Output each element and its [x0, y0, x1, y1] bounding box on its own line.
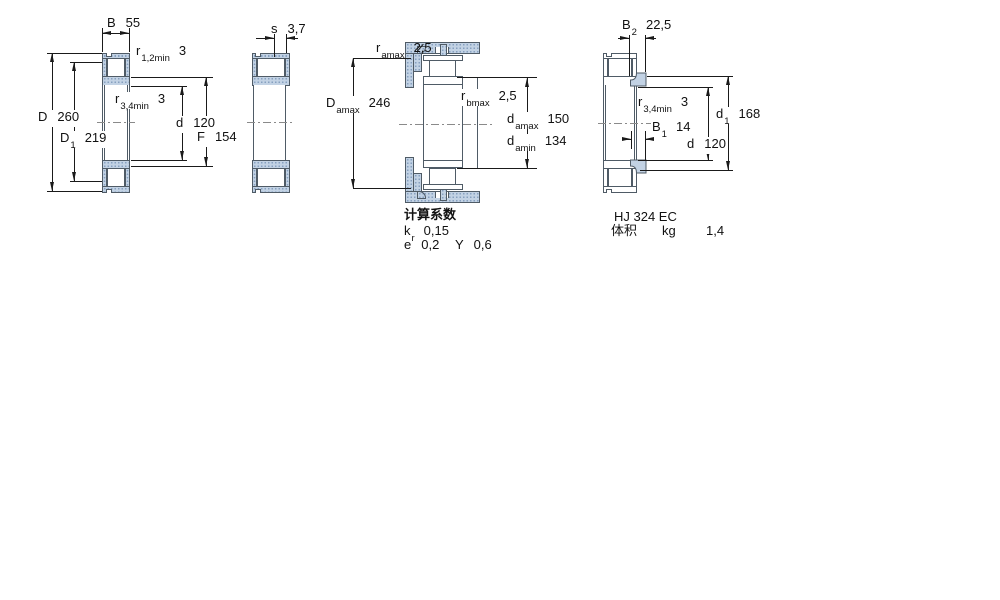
arrowhead — [645, 137, 654, 141]
dim-label-F: F154 — [196, 130, 238, 147]
dim-label-damax: damax150 — [506, 112, 570, 129]
ext-line — [47, 53, 102, 54]
outer-ring-flange — [125, 168, 130, 187]
ext-line — [645, 35, 646, 72]
bore — [253, 85, 286, 161]
arrowhead — [351, 58, 355, 67]
angle-ring-section — [630, 159, 647, 174]
dim-label-ramax: ramax2,5 — [376, 41, 432, 58]
arrowhead — [525, 159, 529, 168]
ext-line — [131, 77, 213, 78]
ext-line — [638, 160, 713, 161]
calc-e: e0,2 — [404, 238, 439, 255]
dim-label-D1: D1219 — [59, 131, 107, 148]
centerline — [399, 124, 492, 125]
dim-label-d1: d1168 — [715, 107, 761, 124]
ext-line — [47, 191, 102, 192]
dim-label-d: d120 — [686, 137, 727, 154]
arrowhead — [706, 87, 710, 96]
roller — [608, 168, 632, 187]
calc-Y: Y0,6 — [455, 238, 492, 255]
ring-face-line — [104, 85, 105, 161]
arrowhead — [204, 77, 208, 86]
angle-ring-section — [630, 72, 647, 87]
arrowhead — [351, 179, 355, 188]
snap-ring-groove — [106, 189, 112, 193]
designation-label: HJ 324 EC — [614, 210, 677, 224]
arrowhead — [50, 182, 54, 191]
outer-ring-flange — [285, 168, 290, 187]
ext-line — [70, 181, 102, 182]
dim-label-B2: B222,5 — [622, 18, 671, 35]
arrowhead — [726, 161, 730, 170]
centerline — [247, 122, 295, 123]
dim-label-Damax: Damax246 — [325, 96, 391, 113]
arrowhead — [72, 172, 76, 181]
bore — [423, 85, 463, 160]
dim-label-D: D260 — [37, 110, 80, 127]
shaft-shoulder-line — [457, 168, 537, 169]
dim-label-B: B55 — [107, 16, 140, 33]
roller — [257, 168, 285, 187]
arrowhead — [620, 36, 629, 40]
ext-line — [640, 170, 733, 171]
arrowhead — [525, 78, 529, 87]
roller — [107, 168, 125, 187]
dim-label-rbmax: rbmax2,5 — [460, 89, 518, 106]
arrowhead — [180, 86, 184, 95]
arrowhead — [622, 137, 631, 141]
roller — [257, 58, 285, 77]
ext-line — [647, 76, 733, 77]
housing-shoulder-step — [413, 173, 422, 192]
arrowhead — [180, 151, 184, 160]
ext-line — [638, 87, 713, 88]
dim-line — [353, 58, 354, 188]
ext-line — [131, 166, 213, 167]
ext-line — [645, 131, 646, 160]
dim-label-r34min: r3,4min3 — [637, 95, 689, 112]
outer-ring-flange — [125, 58, 130, 77]
arrowhead — [726, 76, 730, 85]
snap-ring-groove — [606, 53, 612, 57]
roller — [107, 58, 125, 77]
dim-label-r12min: r1,2min3 — [136, 44, 186, 61]
centerline — [97, 122, 135, 123]
outer-ring-flange — [285, 58, 290, 77]
ext-line — [353, 188, 411, 189]
ext-line — [70, 62, 102, 63]
bearing-drawing-canvas: B55 r1,2min3 r3,4min3 D260 D1219 d120 F1… — [0, 0, 1000, 600]
dim-label-B1: B114 — [651, 120, 691, 137]
ext-line — [629, 35, 630, 76]
roller — [429, 60, 456, 77]
mass-value: 1,4 — [706, 224, 724, 238]
ext-line — [131, 160, 187, 161]
dim-label-damin: damin134 — [506, 134, 568, 151]
inner-ring-bottom — [423, 160, 463, 168]
outer-ring-bottom — [423, 184, 463, 190]
roller — [429, 168, 456, 185]
snap-ring-groove — [255, 53, 261, 57]
mass-label: 体积 — [611, 224, 637, 238]
snap-ring-groove — [255, 189, 261, 193]
dim-label-s: s3,7 — [271, 22, 306, 39]
calc-factors-heading: 计算系数 — [404, 208, 456, 222]
ext-line — [631, 131, 632, 149]
arrowhead — [50, 53, 54, 62]
arrowhead — [204, 157, 208, 166]
arrowhead — [645, 36, 654, 40]
snap-ring-groove — [106, 53, 112, 57]
arrowhead — [72, 62, 76, 71]
mass-unit: kg — [662, 224, 676, 238]
ext-line — [131, 86, 187, 87]
snap-ring-groove — [606, 189, 612, 193]
dim-label-r34min: r3,4min3 — [114, 92, 166, 109]
